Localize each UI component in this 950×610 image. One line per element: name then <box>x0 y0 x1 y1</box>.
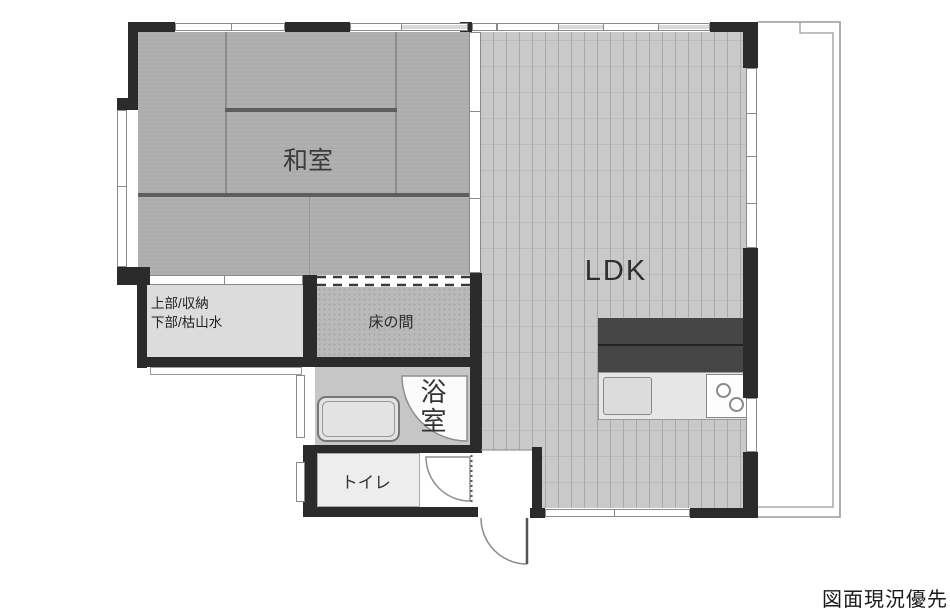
fusuma-track-top <box>472 23 497 31</box>
door-swing-arc-toilet <box>426 457 470 501</box>
window-right-kitchen <box>746 398 757 452</box>
track-divider <box>224 276 225 284</box>
note-text: 図面現況優先 <box>812 583 948 610</box>
floor-plan: 和室 LDK 床の間 上部/収納 下部/枯山水 浴室 トイレ 図面現況優先 <box>0 0 950 610</box>
wall-segment <box>530 508 545 518</box>
window-top-ldk <box>497 23 710 31</box>
window-toilet-left <box>296 462 305 502</box>
stove-burner-icon <box>729 397 744 412</box>
ldk-label: LDK <box>576 255 656 288</box>
wall-segment <box>137 357 482 367</box>
fusuma-sliding-door <box>469 32 481 273</box>
tatami-divider <box>225 32 227 195</box>
bay-window-left <box>117 110 127 267</box>
window-bottom-ldk <box>545 509 690 517</box>
wall-segment <box>137 277 147 368</box>
closet-label-line1: 上部/収納 <box>151 294 222 313</box>
wall-segment <box>128 22 138 98</box>
window-closet-bottom <box>150 367 302 375</box>
tatami-divider <box>395 32 397 195</box>
wall-segment <box>303 507 478 517</box>
balcony-outline <box>758 22 840 517</box>
toilet-label: トイレ <box>325 469 407 493</box>
tokonoma-open-boundary <box>317 275 470 287</box>
closet-label-line2: 下部/枯山水 <box>151 313 222 332</box>
bathtub-inner-rim <box>322 401 395 437</box>
tatami-divider <box>309 197 310 275</box>
wall-segment <box>285 22 350 32</box>
closet-label: 上部/収納 下部/枯山水 <box>151 294 222 332</box>
window-top-washitsu-2 <box>350 23 468 31</box>
bathtub <box>317 396 400 442</box>
stove <box>706 374 748 418</box>
kitchen-sink <box>603 377 652 415</box>
wall-segment <box>117 98 138 110</box>
entrance-hall <box>481 450 532 508</box>
window-right-ldk <box>746 68 757 248</box>
balcony-outline <box>758 22 833 507</box>
window-top-washitsu <box>175 23 285 31</box>
stove-burner-icon <box>716 383 731 398</box>
tatami-divider <box>138 193 470 197</box>
wall-segment <box>303 445 482 453</box>
wall-segment <box>743 248 758 398</box>
wall-segment <box>303 275 317 367</box>
window-bathroom-left <box>296 375 305 438</box>
washitsu-label: 和室 <box>262 141 354 177</box>
tokonoma-label: 床の間 <box>341 311 441 332</box>
wall-segment <box>470 273 482 453</box>
door-swing-arc-entrance <box>481 518 527 564</box>
wall-segment <box>743 22 758 68</box>
tatami-divider <box>225 108 397 112</box>
wall-segment <box>743 452 758 518</box>
closet-sliding-door-track <box>147 275 303 285</box>
bathroom-label: 浴室 <box>417 378 447 436</box>
kitchen-counter <box>598 318 752 372</box>
counter-divider-line <box>598 344 752 346</box>
